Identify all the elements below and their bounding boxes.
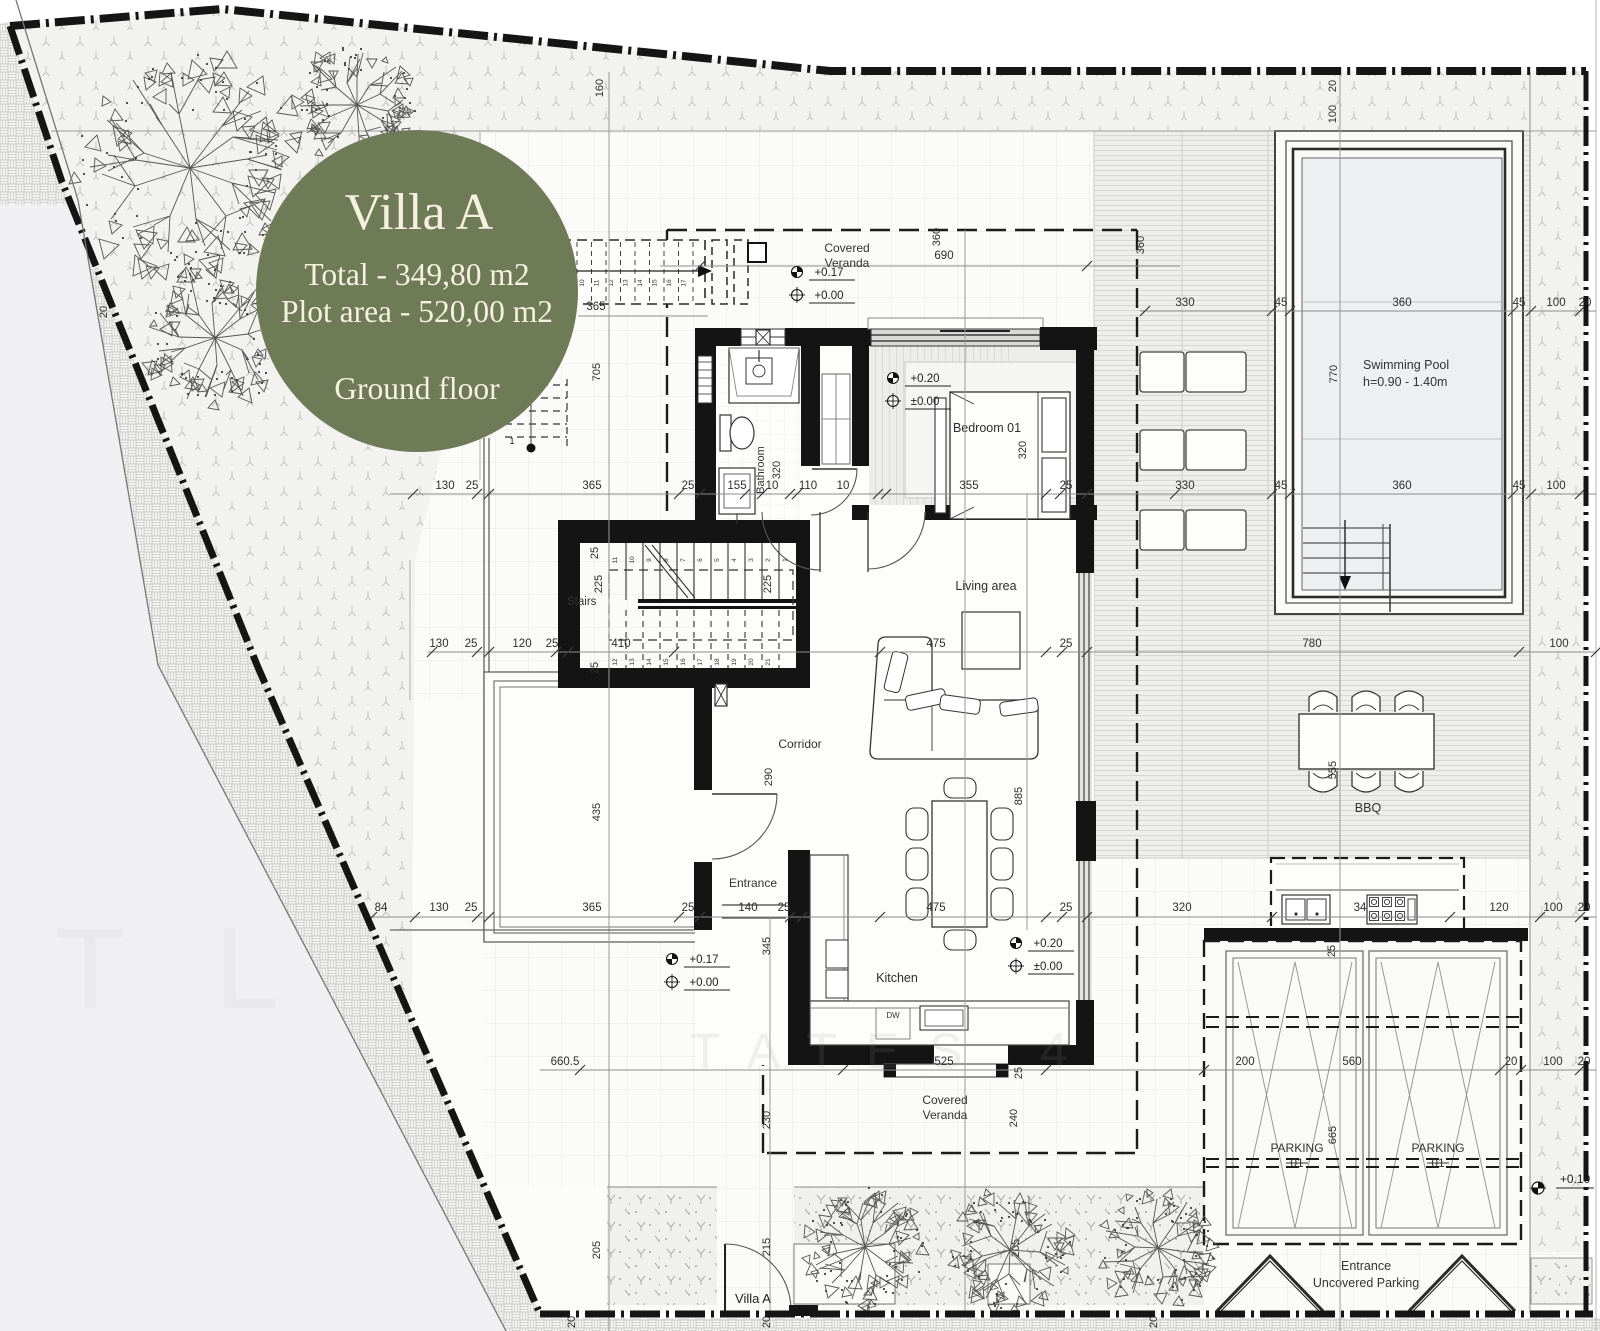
svg-text:20: 20	[761, 1316, 773, 1328]
svg-text:555: 555	[1327, 761, 1339, 779]
svg-text:Swimming Pool: Swimming Pool	[1363, 358, 1449, 372]
svg-text:Villa A: Villa A	[345, 184, 494, 241]
svg-text:360: 360	[1135, 236, 1147, 254]
svg-text:365: 365	[582, 480, 601, 492]
svg-text:84: 84	[375, 902, 388, 914]
svg-text:1: 1	[509, 436, 514, 446]
svg-text:355: 355	[959, 480, 978, 492]
svg-text:13: 13	[629, 658, 636, 666]
svg-text:360: 360	[1392, 297, 1411, 309]
svg-text:Covered: Covered	[922, 1093, 967, 1107]
svg-text:+0.00: +0.00	[814, 290, 843, 302]
svg-text:DW: DW	[886, 1011, 900, 1020]
svg-text:290: 290	[763, 768, 775, 786]
svg-text:770: 770	[1328, 365, 1340, 383]
svg-text:25: 25	[682, 480, 695, 492]
svg-text:25: 25	[1060, 902, 1073, 914]
svg-text:25: 25	[466, 480, 479, 492]
svg-text:240: 240	[1008, 1109, 1020, 1127]
svg-text:130: 130	[429, 902, 448, 914]
svg-text:+0.00: +0.00	[689, 977, 718, 989]
svg-text:20: 20	[566, 1316, 578, 1328]
svg-text:110: 110	[799, 480, 817, 492]
svg-text:Veranda: Veranda	[923, 1108, 968, 1122]
svg-text:1: 1	[782, 558, 789, 562]
svg-text:Total - 349,80 m2: Total - 349,80 m2	[304, 257, 529, 292]
svg-text:Entrance: Entrance	[1341, 1259, 1391, 1273]
svg-text:17: 17	[681, 279, 688, 287]
svg-text:130: 130	[435, 480, 454, 492]
svg-text:Uncovered Parking: Uncovered Parking	[1313, 1276, 1419, 1290]
svg-text:25: 25	[465, 902, 478, 914]
svg-text:3: 3	[748, 558, 755, 562]
svg-text:660.5: 660.5	[551, 1056, 580, 1068]
svg-text:215: 215	[761, 1238, 773, 1256]
svg-text:21: 21	[765, 658, 772, 666]
svg-text:25: 25	[1326, 945, 1338, 957]
svg-text:25: 25	[1060, 480, 1073, 492]
svg-text:100: 100	[1543, 902, 1562, 914]
svg-text:Plot area - 520,00 m2: Plot area - 520,00 m2	[281, 294, 553, 329]
svg-text:±0.00: ±0.00	[1034, 961, 1063, 973]
svg-text:10: 10	[579, 279, 586, 287]
svg-text:100: 100	[1546, 297, 1565, 309]
svg-text:18: 18	[714, 658, 721, 666]
svg-text:120: 120	[1489, 902, 1508, 914]
svg-text:360: 360	[931, 228, 943, 246]
svg-text:19: 19	[731, 658, 738, 666]
svg-text:560: 560	[1342, 1056, 1361, 1068]
svg-text:705: 705	[591, 363, 603, 381]
svg-text:230: 230	[761, 1111, 773, 1129]
svg-text:10: 10	[629, 556, 636, 564]
svg-text:T A T E S: T A T E S	[690, 1023, 970, 1079]
svg-text:25: 25	[465, 638, 478, 650]
svg-text:200: 200	[1235, 1056, 1254, 1068]
svg-text:25: 25	[1060, 638, 1073, 650]
svg-text:100: 100	[1327, 105, 1339, 123]
svg-text:20: 20	[1327, 80, 1339, 92]
svg-text:435: 435	[591, 803, 603, 821]
svg-text:155: 155	[727, 480, 746, 492]
svg-text:25: 25	[778, 902, 791, 914]
svg-text:14: 14	[646, 658, 653, 666]
svg-text:Corridor: Corridor	[778, 737, 821, 751]
svg-text:11: 11	[594, 279, 601, 286]
svg-text:665: 665	[1327, 1126, 1339, 1144]
svg-text:690: 690	[934, 250, 953, 262]
svg-text:9: 9	[646, 558, 653, 562]
svg-text:45: 45	[1275, 480, 1288, 492]
svg-text:17: 17	[697, 658, 704, 666]
svg-text:14: 14	[637, 279, 644, 287]
svg-text:4: 4	[1040, 1023, 1068, 1079]
svg-text:+0.20: +0.20	[1033, 938, 1062, 950]
svg-text:20: 20	[98, 306, 110, 318]
svg-text:Villa A: Villa A	[735, 1291, 771, 1306]
svg-text:15: 15	[652, 279, 659, 287]
svg-text:+0.20: +0.20	[910, 373, 939, 385]
svg-text:140: 140	[738, 902, 757, 914]
svg-text:T L: T L	[55, 905, 309, 1033]
svg-text:885: 885	[1013, 787, 1025, 805]
svg-text:Veranda: Veranda	[825, 256, 870, 270]
svg-text:Ground floor: Ground floor	[334, 371, 500, 406]
svg-text:120: 120	[512, 638, 531, 650]
svg-text:12: 12	[612, 658, 619, 666]
svg-text:780: 780	[1302, 638, 1321, 650]
svg-text:10: 10	[766, 480, 779, 492]
svg-text:±0.00: ±0.00	[911, 396, 940, 408]
svg-text:PARKING: PARKING	[1270, 1141, 1323, 1155]
svg-text:16: 16	[680, 658, 687, 666]
svg-text:100: 100	[1543, 1056, 1562, 1068]
svg-text:2: 2	[765, 558, 772, 562]
svg-text:410: 410	[611, 638, 630, 650]
svg-text:25: 25	[682, 902, 695, 914]
svg-text:320: 320	[1017, 441, 1029, 459]
svg-text:320: 320	[1172, 902, 1191, 914]
svg-text:h=0.90 - 1.40m: h=0.90 - 1.40m	[1363, 375, 1447, 389]
svg-text:16: 16	[666, 279, 673, 287]
svg-text:13: 13	[623, 279, 630, 287]
svg-text:Entrance: Entrance	[729, 876, 777, 890]
svg-text:6: 6	[697, 558, 704, 562]
svg-text:475: 475	[926, 902, 945, 914]
svg-text:+0.17: +0.17	[689, 954, 718, 966]
svg-text:4: 4	[731, 558, 738, 562]
svg-text:PARKING: PARKING	[1411, 1141, 1464, 1155]
svg-text:100: 100	[1549, 638, 1568, 650]
svg-text:BBQ: BBQ	[1355, 801, 1382, 815]
svg-text:20: 20	[1505, 1056, 1518, 1068]
svg-text:225: 225	[762, 575, 774, 593]
svg-text:225: 225	[593, 575, 605, 593]
svg-text:45: 45	[1513, 297, 1526, 309]
svg-text:345: 345	[761, 937, 773, 955]
svg-text:Covered: Covered	[824, 241, 869, 255]
svg-text:330: 330	[1175, 480, 1194, 492]
svg-text:25: 25	[589, 547, 601, 559]
svg-text:45: 45	[1275, 297, 1288, 309]
svg-text:20: 20	[1148, 1316, 1160, 1328]
svg-text:365: 365	[582, 902, 601, 914]
svg-text:7: 7	[680, 558, 687, 562]
svg-text:365: 365	[586, 301, 605, 313]
svg-text:Kitchen: Kitchen	[876, 971, 918, 985]
svg-text:25: 25	[589, 662, 601, 674]
svg-text:25: 25	[1013, 1067, 1025, 1079]
svg-text:130: 130	[429, 638, 448, 650]
svg-text:475: 475	[926, 638, 945, 650]
svg-text:10: 10	[837, 480, 850, 492]
svg-text:34: 34	[1354, 902, 1367, 914]
svg-text:160: 160	[594, 79, 606, 97]
svg-text:11: 11	[612, 556, 619, 563]
svg-text:320: 320	[771, 461, 783, 479]
svg-text:25: 25	[546, 638, 559, 650]
svg-text:15: 15	[663, 658, 670, 666]
svg-text:Bedroom 01: Bedroom 01	[953, 421, 1021, 435]
svg-text:45: 45	[1513, 480, 1526, 492]
svg-text:Stairs: Stairs	[567, 596, 597, 608]
svg-text:100: 100	[1546, 480, 1565, 492]
svg-text:360: 360	[1392, 480, 1411, 492]
svg-text:5: 5	[714, 558, 721, 562]
svg-text:330: 330	[1175, 297, 1194, 309]
svg-text:20: 20	[748, 658, 755, 666]
svg-text:205: 205	[591, 1241, 603, 1259]
